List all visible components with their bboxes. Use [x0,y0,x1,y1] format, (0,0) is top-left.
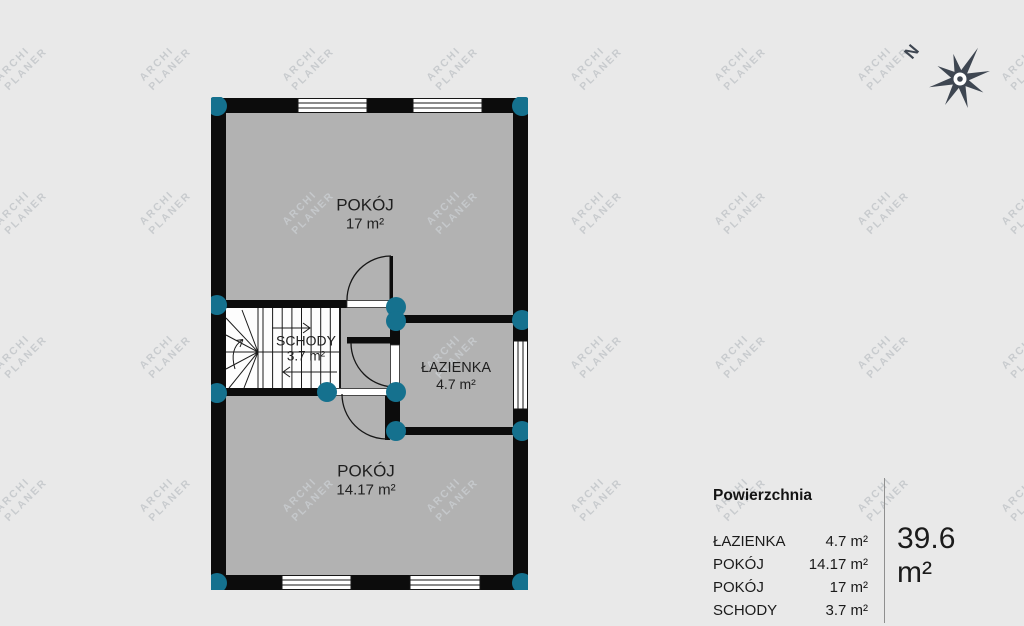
legend-room-area: 17 m² [830,579,868,596]
legend-room-name: POKÓJ [713,579,764,596]
room-name: POKÓJ [336,196,394,216]
room-name: POKÓJ [336,462,395,482]
legend-divider [884,478,885,623]
legend-room-name: POKÓJ [713,556,764,573]
door-opening-pokoj-bottom [335,389,388,396]
node [386,382,406,402]
room-label-pokoj-top: POKÓJ 17 m² [336,196,394,233]
room-label-pokoj-bottom: POKÓJ 14.17 m² [336,462,395,499]
node [386,421,406,441]
door-swing-lazienka [351,343,395,387]
legend-room-name: SCHODY [713,602,777,619]
exterior-walls [211,98,528,590]
watermark: ARCHIPLANER [568,324,625,381]
window-bottom-left [282,576,351,590]
floorplan-page: { "watermark": { "line1": "ARCHI", "line… [0,0,1024,626]
watermark: ARCHIPLANER [568,180,625,237]
door-opening-lazienka [391,345,400,386]
room-area: 3.7 m² [276,349,336,364]
watermark: ARCHIPLANER [0,468,50,525]
legend-rows: ŁAZIENKA 4.7 m² POKÓJ 14.17 m² POKÓJ 17 … [713,530,868,622]
watermark: ARCHIPLANER [137,324,194,381]
legend-room-area: 3.7 m² [825,602,868,619]
watermark: ARCHIPLANER [712,36,769,93]
floorplan-drawing [211,97,528,590]
watermark: ARCHIPLANER [568,36,625,93]
watermark: ARCHIPLANER [855,324,912,381]
window-bathroom [514,341,528,409]
room-area: 17 m² [336,216,394,233]
room-area: 4.7 m² [421,376,491,392]
compass-rose: N [898,24,1018,124]
watermark: ARCHIPLANER [999,180,1024,237]
compass-hub-dot [957,76,963,82]
watermark: ARCHIPLANER [137,180,194,237]
legend-title: Powierzchnia [713,487,812,505]
wall-left [211,98,226,590]
doors [342,256,397,440]
legend-room-area: 14.17 m² [809,556,868,573]
wall-bath-bottom [397,427,528,435]
node [386,311,406,331]
watermark: ARCHIPLANER [568,468,625,525]
watermark: ARCHIPLANER [999,468,1024,525]
window-top-right [413,99,482,113]
room-area: 14.17 m² [336,482,395,499]
room-label-lazienka: ŁAZIENKA 4.7 m² [421,360,491,392]
watermark: ARCHIPLANER [999,324,1024,381]
stair-winders [226,308,258,388]
watermark: ARCHIPLANER [137,36,194,93]
room-name: SCHODY [276,333,336,349]
watermark: ARCHIPLANER [424,36,481,93]
door-leaf-lazienka [347,337,397,344]
watermark: ARCHIPLANER [855,180,912,237]
node [317,382,337,402]
room-label-schody: SCHODY 3.7 m² [276,333,336,364]
legend-room-area: 4.7 m² [825,533,868,550]
watermark: ARCHIPLANER [712,324,769,381]
door-swing-pokoj-bottom [342,394,387,439]
watermark: ARCHIPLANER [712,180,769,237]
watermark: ARCHIPLANER [0,180,50,237]
door-leaf-pokoj-top [390,256,394,301]
compass-north-label: N [901,41,923,63]
legend-total-area: 39.6 m² [897,522,955,590]
watermark: ARCHIPLANER [281,36,338,93]
wall-bath-top [397,315,528,323]
legend-row: ŁAZIENKA 4.7 m² [713,530,868,553]
legend-room-name: ŁAZIENKA [713,533,786,550]
legend-row: SCHODY 3.7 m² [713,599,868,622]
watermark: ARCHIPLANER [137,468,194,525]
door-opening-pokoj-top [347,301,392,308]
legend-row: POKÓJ 14.17 m² [713,553,868,576]
watermark: ARCHIPLANER [0,36,50,93]
window-bottom-right [410,576,480,590]
legend-row: POKÓJ 17 m² [713,576,868,599]
door-swing-pokoj-top [347,256,391,300]
room-name: ŁAZIENKA [421,360,491,376]
watermark: ARCHIPLANER [0,324,50,381]
window-top-left [298,99,367,113]
